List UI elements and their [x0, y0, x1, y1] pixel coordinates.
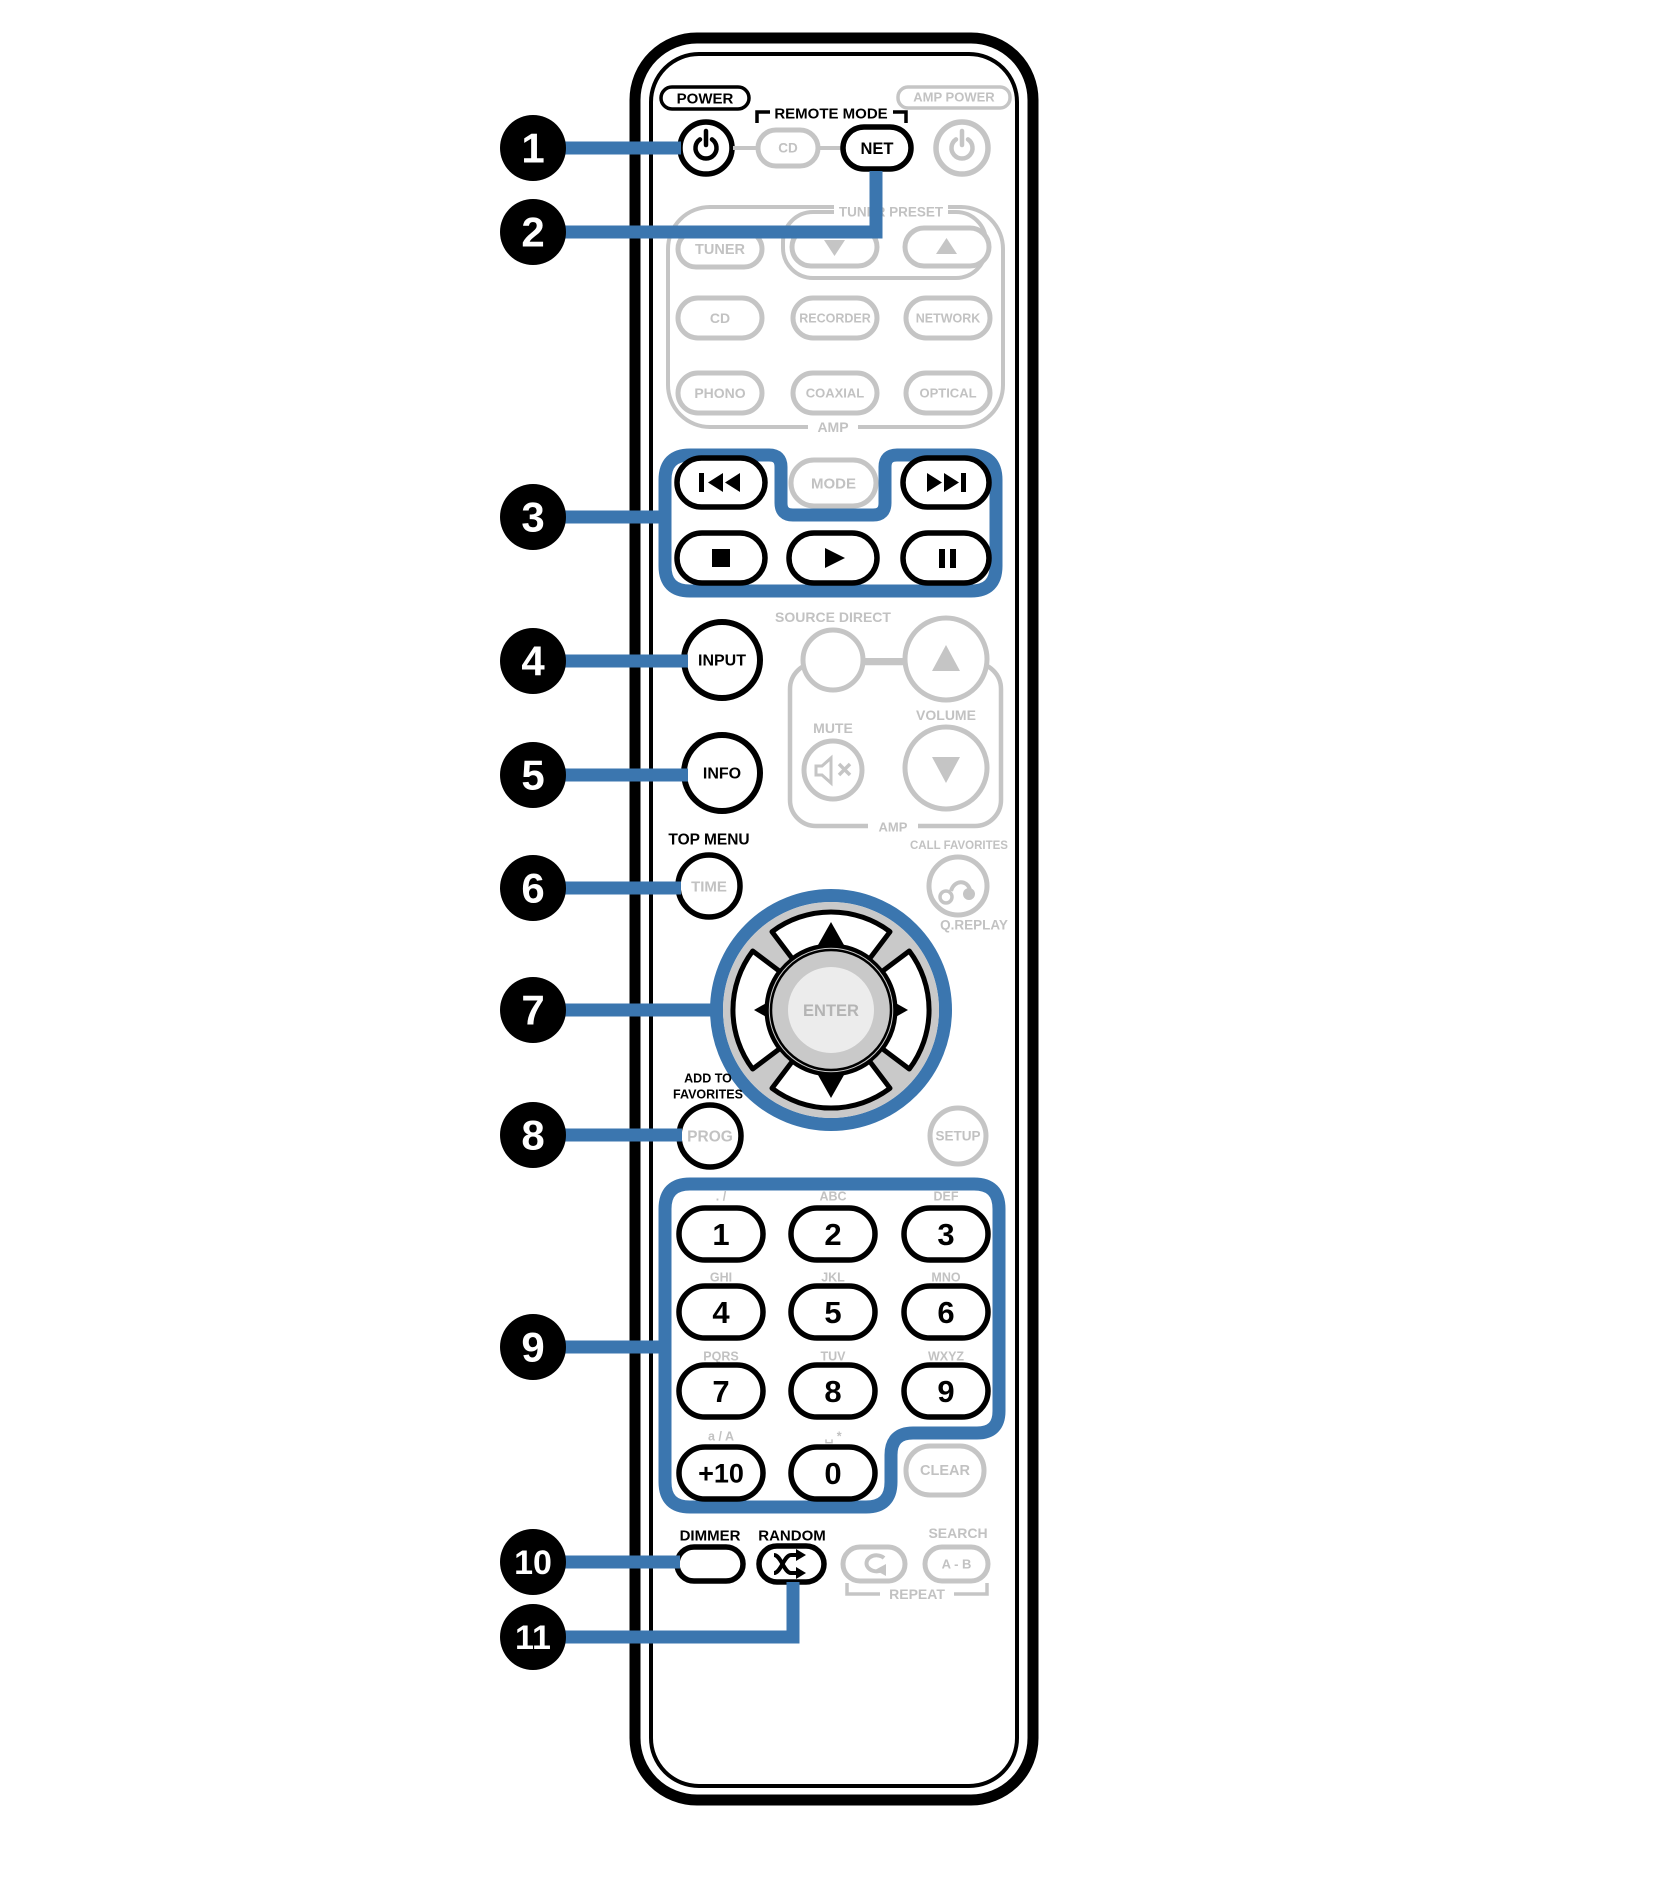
prog-button-label: PROG: [687, 1128, 733, 1145]
tuner-button-label: TUNER: [695, 242, 745, 258]
input-button-label: INPUT: [698, 653, 746, 670]
callout-number-2: 2: [521, 209, 544, 256]
key7-letters: PQRS: [703, 1349, 738, 1363]
callout-number-10: 10: [514, 1544, 552, 1582]
clear-button-label: CLEAR: [920, 1463, 970, 1479]
random-button: [759, 1546, 824, 1582]
amp-volume-label: AMP: [879, 820, 908, 835]
add-to-favorites-label-line2: FAVORITES: [673, 1087, 743, 1101]
volume-label: VOLUME: [916, 707, 976, 723]
source-network-label: NETWORK: [916, 311, 981, 325]
source-direct-button: [803, 630, 863, 690]
key-7-label: 7: [712, 1374, 729, 1409]
call-favorites-label: CALL FAVORITES: [910, 840, 1008, 852]
key-4-label: 4: [712, 1295, 730, 1330]
key0-letters: ␣ *: [824, 1429, 841, 1443]
key-0-label: 0: [824, 1456, 841, 1491]
key-5-label: 5: [824, 1295, 841, 1330]
source-coaxial-label: COAXIAL: [806, 386, 865, 401]
callout-number-9: 9: [521, 1324, 544, 1371]
remote-mode-net-label: NET: [861, 140, 894, 158]
tuner-preset-label: TUNER PRESET: [839, 205, 944, 220]
key-8-label: 8: [824, 1374, 841, 1409]
key4-letters: GHI: [710, 1270, 732, 1284]
key8-letters: TUV: [821, 1349, 847, 1363]
search-label: SEARCH: [928, 1525, 987, 1541]
setup-button-label: SETUP: [935, 1129, 980, 1144]
time-button-label: TIME: [691, 878, 727, 895]
source-direct-label: SOURCE DIRECT: [775, 609, 891, 625]
amp-sources-label: AMP: [817, 419, 848, 435]
key-3-label: 3: [937, 1217, 954, 1252]
callout-number-1: 1: [521, 125, 544, 172]
key9-letters: WXYZ: [928, 1349, 964, 1363]
mode-button-label: MODE: [811, 475, 856, 492]
stop-icon: [712, 549, 730, 567]
key6-letters: MNO: [931, 1270, 960, 1284]
enter-button-label: ENTER: [803, 1002, 859, 1020]
add-to-favorites-label-line1: ADD TO: [684, 1071, 732, 1085]
key5-letters: JKL: [821, 1270, 845, 1284]
dimmer-label: DIMMER: [680, 1527, 741, 1544]
source-phono-label: PHONO: [694, 385, 745, 401]
callout-number-4: 4: [521, 638, 545, 685]
top-menu-label: TOP MENU: [668, 831, 749, 848]
key-plus10-letters: a / A: [708, 1429, 734, 1443]
callout-badges: 1 2 3 4 5 6 7 8 9 10 11: [500, 115, 566, 1670]
key1-letters: . /: [716, 1189, 727, 1203]
remote-control-callout-diagram: POWER REMOTE MODE CD NET AMP POWER TUNER…: [0, 0, 1665, 1878]
key-1-label: 1: [712, 1217, 729, 1252]
remote-mode-label: REMOTE MODE: [774, 105, 887, 122]
callout-number-5: 5: [521, 752, 544, 799]
key3-letters: DEF: [934, 1189, 959, 1203]
q-replay-label: Q.REPLAY: [940, 918, 1008, 933]
key-2-label: 2: [824, 1217, 841, 1252]
key-6-label: 6: [937, 1295, 954, 1330]
dimmer-button: [677, 1547, 743, 1581]
dpad-section: ENTER: [717, 896, 946, 1125]
key-plus10-label: +10: [698, 1458, 744, 1488]
info-button-label: INFO: [703, 766, 741, 783]
call-favorites-button: [929, 857, 987, 915]
callout-number-8: 8: [521, 1112, 544, 1159]
key-9-label: 9: [937, 1374, 954, 1409]
source-recorder-label: RECORDER: [799, 311, 871, 325]
power-label: POWER: [677, 90, 734, 107]
ab-repeat-label: A - B: [942, 1557, 972, 1572]
callout-number-6: 6: [521, 865, 544, 912]
repeat-button: [843, 1547, 905, 1581]
amp-power-label: AMP POWER: [913, 90, 995, 105]
random-label: RANDOM: [758, 1527, 826, 1544]
repeat-label: REPEAT: [889, 1586, 945, 1602]
remote-mode-cd-label: CD: [778, 141, 798, 156]
callout-number-3: 3: [521, 494, 544, 541]
mute-button: [804, 741, 862, 799]
pause-button: [903, 533, 989, 583]
source-optical-label: OPTICAL: [919, 386, 976, 401]
source-cd-label: CD: [710, 310, 730, 326]
callout-number-11: 11: [515, 1619, 551, 1657]
mute-label: MUTE: [813, 720, 853, 736]
key2-letters: ABC: [819, 1189, 846, 1203]
callout-number-7: 7: [521, 987, 544, 1034]
